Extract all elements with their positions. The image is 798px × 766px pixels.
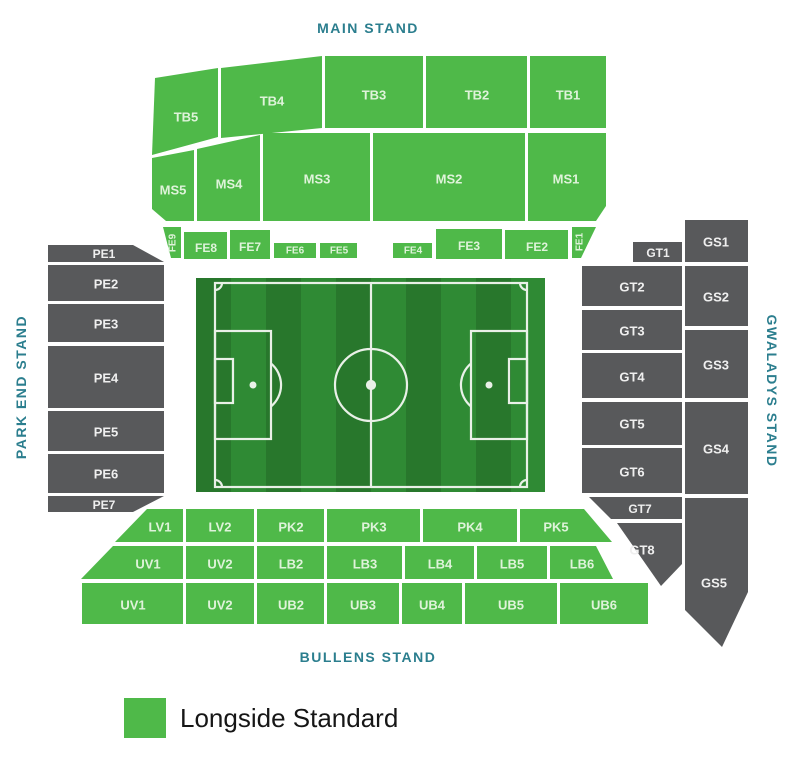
section-gt1[interactable] <box>633 242 682 262</box>
section-ms2[interactable] <box>373 133 525 221</box>
section-tb3[interactable] <box>325 56 423 128</box>
section-pk4[interactable] <box>423 509 517 542</box>
section-uv2-lower[interactable] <box>186 583 254 624</box>
legend: Longside Standard <box>124 698 398 738</box>
section-gs2[interactable] <box>685 266 748 326</box>
section-tb1[interactable] <box>530 56 606 128</box>
section-gt3[interactable] <box>582 310 682 350</box>
section-gt7[interactable] <box>589 497 682 519</box>
section-fe2[interactable] <box>505 230 568 259</box>
section-tb2[interactable] <box>426 56 527 128</box>
section-gs1[interactable] <box>685 220 748 262</box>
section-gs4[interactable] <box>685 402 748 494</box>
section-pe6[interactable] <box>48 454 164 493</box>
stand-label-bullens-stand: BULLENS STAND <box>300 649 437 665</box>
section-gs5[interactable] <box>685 498 748 647</box>
section-ms1[interactable] <box>528 133 606 221</box>
section-ub5[interactable] <box>465 583 557 624</box>
section-pe5[interactable] <box>48 411 164 451</box>
section-fe7[interactable] <box>230 230 270 259</box>
section-pk5[interactable] <box>520 509 612 542</box>
section-fe9[interactable] <box>163 227 181 258</box>
section-ub6[interactable] <box>560 583 648 624</box>
stand-label-gwaladys-stand: GWALADYS STAND <box>764 315 780 468</box>
stand-label-park-end-stand: PARK END STAND <box>13 315 29 459</box>
stand-label-main-stand: MAIN STAND <box>317 20 419 36</box>
section-ub4[interactable] <box>402 583 462 624</box>
section-lv1[interactable] <box>115 509 183 542</box>
section-pe3[interactable] <box>48 304 164 342</box>
section-gt5[interactable] <box>582 402 682 445</box>
section-pe4[interactable] <box>48 346 164 408</box>
section-lb6[interactable] <box>550 546 613 579</box>
section-pk2[interactable] <box>257 509 324 542</box>
section-pe1[interactable] <box>48 245 164 262</box>
legend-swatch-longside-standard <box>124 698 166 738</box>
section-uv1-upper[interactable] <box>81 546 183 579</box>
section-uv2-upper[interactable] <box>186 546 254 579</box>
section-gt2[interactable] <box>582 266 682 306</box>
section-gs3[interactable] <box>685 330 748 398</box>
section-lb2[interactable] <box>257 546 324 579</box>
section-fe8[interactable] <box>184 232 227 259</box>
section-ms5[interactable] <box>152 150 194 221</box>
section-lb3[interactable] <box>327 546 402 579</box>
section-lv2[interactable] <box>186 509 254 542</box>
section-ub3[interactable] <box>327 583 399 624</box>
section-fe3[interactable] <box>436 229 502 259</box>
section-ms3[interactable] <box>263 133 370 221</box>
section-gt4[interactable] <box>582 353 682 398</box>
section-ub2[interactable] <box>257 583 324 624</box>
section-pk3[interactable] <box>327 509 420 542</box>
section-fe4[interactable] <box>393 243 432 258</box>
section-uv1-lower[interactable] <box>82 583 183 624</box>
pitch-image <box>196 278 545 492</box>
section-fe5[interactable] <box>320 243 357 258</box>
section-lb4[interactable] <box>405 546 474 579</box>
section-tb4[interactable] <box>221 56 322 138</box>
section-tb5[interactable] <box>152 68 218 155</box>
section-ms4[interactable] <box>197 135 260 221</box>
section-pe2[interactable] <box>48 265 164 301</box>
section-gt6[interactable] <box>582 448 682 493</box>
section-fe1[interactable] <box>572 227 596 258</box>
legend-label: Longside Standard <box>180 705 398 731</box>
section-lb5[interactable] <box>477 546 547 579</box>
stadium-seat-map: TB5TB4TB3TB2TB1MS5MS4MS3MS2MS1FE9FE8FE7F… <box>0 0 798 766</box>
section-fe6[interactable] <box>274 243 316 258</box>
section-gt8[interactable] <box>617 523 682 586</box>
